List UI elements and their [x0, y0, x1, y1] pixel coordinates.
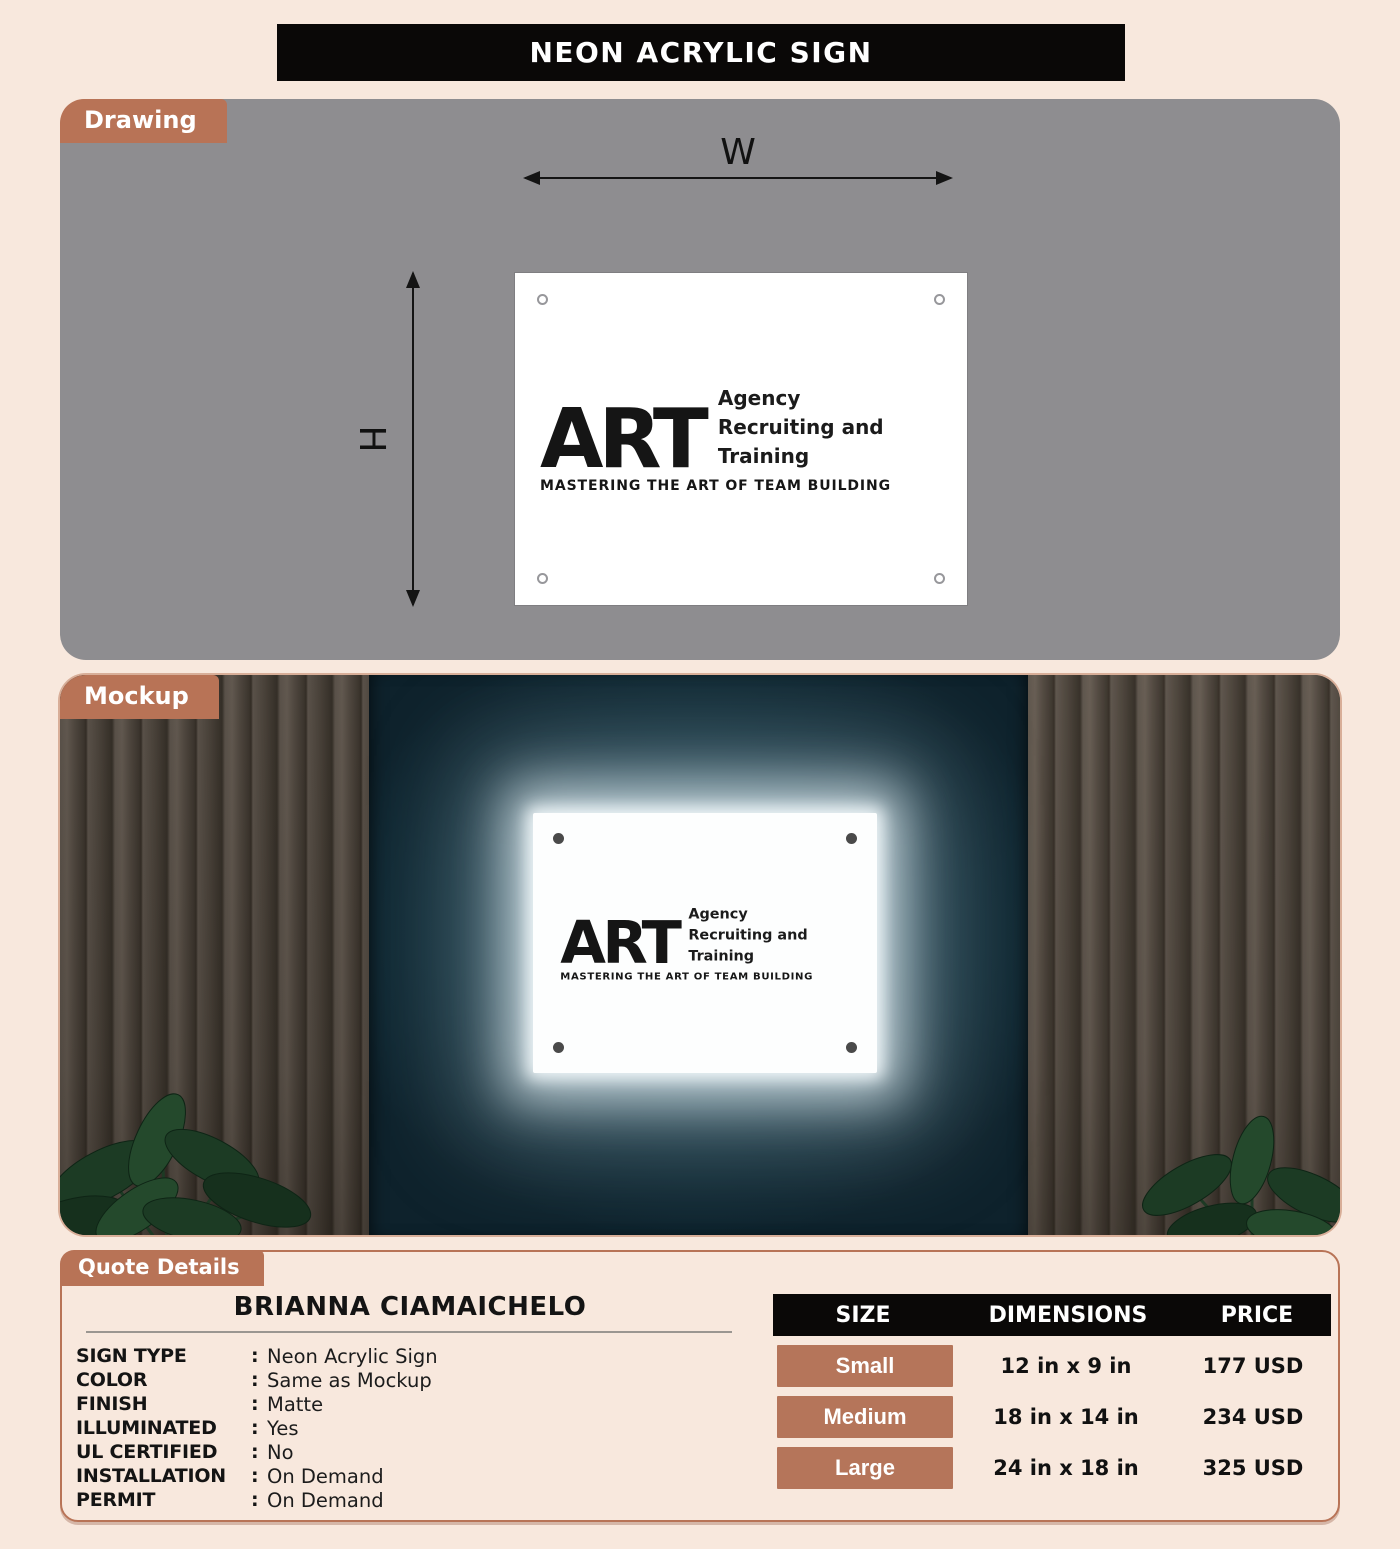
pricing-row-small: Small 12 in x 9 in 177 USD — [773, 1345, 1331, 1387]
art-logo: ART Agency Recruiting and Training MASTE… — [540, 384, 942, 494]
spec-label: ILLUMINATED — [76, 1417, 251, 1439]
title-bar: NEON ACRYLIC SIGN — [277, 24, 1125, 81]
spec-row-ul-certified: UL CERTIFIED : No — [76, 1440, 438, 1464]
spec-label: UL CERTIFIED — [76, 1441, 251, 1463]
spec-row-sign-type: SIGN TYPE : Neon Acrylic Sign — [76, 1344, 438, 1368]
art-logo-subtitle: MASTERING THE ART OF TEAM BUILDING — [540, 478, 942, 494]
mounting-hole-icon — [934, 294, 945, 305]
width-dimension-label: W — [638, 132, 838, 173]
mockup-section: ART Agency Recruiting and Training MASTE… — [60, 675, 1340, 1235]
drawing-section: Drawing W H ART Agency Recruiting and Tr… — [60, 99, 1340, 660]
spec-value: Yes — [267, 1417, 298, 1440]
pricing-table-header: SIZE DIMENSIONS PRICE — [773, 1294, 1331, 1336]
price-value: 325 USD — [1179, 1456, 1327, 1480]
spec-list: SIGN TYPE : Neon Acrylic Sign COLOR : Sa… — [76, 1344, 438, 1512]
pricing-table: SIZE DIMENSIONS PRICE Small 12 in x 9 in… — [773, 1294, 1331, 1489]
height-dimension-label: H — [350, 417, 394, 461]
column-header-dimensions: DIMENSIONS — [953, 1303, 1183, 1328]
spec-value: Same as Mockup — [267, 1369, 432, 1392]
art-logo-subtitle: MASTERING THE ART OF TEAM BUILDING — [560, 971, 849, 983]
price-value: 234 USD — [1179, 1405, 1327, 1429]
art-logo-tagline: Agency Recruiting and Training — [718, 384, 884, 473]
width-arrow — [525, 177, 951, 179]
column-header-size: SIZE — [773, 1303, 953, 1328]
sign-drawing: ART Agency Recruiting and Training MASTE… — [515, 273, 967, 605]
spec-label: PERMIT — [76, 1489, 251, 1511]
standoff-dot-icon — [846, 1042, 857, 1053]
price-value: 177 USD — [1179, 1354, 1327, 1378]
sign-mockup: ART Agency Recruiting and Training MASTE… — [533, 813, 877, 1073]
spec-value: On Demand — [267, 1465, 384, 1488]
customer-name: BRIANNA CIAMAICHELO — [82, 1292, 738, 1322]
height-arrow — [412, 273, 414, 605]
page-title: NEON ACRYLIC SIGN — [529, 36, 872, 69]
pricing-row-large: Large 24 in x 18 in 325 USD — [773, 1447, 1331, 1489]
quote-details-section: Quote Details BRIANNA CIAMAICHELO SIGN T… — [60, 1250, 1340, 1522]
column-header-price: PRICE — [1183, 1303, 1331, 1328]
size-button-small[interactable]: Small — [777, 1345, 953, 1387]
art-logo: ART Agency Recruiting and Training MASTE… — [560, 903, 849, 982]
art-logo-tagline: Agency Recruiting and Training — [688, 903, 807, 967]
standoff-dot-icon — [846, 833, 857, 844]
spec-label: COLOR — [76, 1369, 251, 1391]
mounting-hole-icon — [537, 573, 548, 584]
spec-row-color: COLOR : Same as Mockup — [76, 1368, 438, 1392]
size-button-medium[interactable]: Medium — [777, 1396, 953, 1438]
art-logo-wordmark: ART — [540, 406, 718, 473]
quote-sheet-page: NEON ACRYLIC SIGN Drawing W H ART Agency… — [0, 0, 1400, 1549]
mounting-hole-icon — [537, 294, 548, 305]
dimensions-value: 24 in x 18 in — [953, 1456, 1179, 1480]
mockup-tab: Mockup — [60, 675, 219, 719]
pricing-row-medium: Medium 18 in x 14 in 234 USD — [773, 1396, 1331, 1438]
name-divider — [86, 1331, 732, 1333]
dimensions-value: 18 in x 14 in — [953, 1405, 1179, 1429]
plant-right-image — [1102, 1080, 1340, 1235]
mounting-hole-icon — [934, 573, 945, 584]
quote-details-tab: Quote Details — [60, 1250, 264, 1286]
standoff-dot-icon — [553, 1042, 564, 1053]
spec-value: Matte — [267, 1393, 323, 1416]
spec-value: Neon Acrylic Sign — [267, 1345, 438, 1368]
dimensions-value: 12 in x 9 in — [953, 1354, 1179, 1378]
art-logo-wordmark: ART — [560, 919, 688, 967]
spec-row-illuminated: ILLUMINATED : Yes — [76, 1416, 438, 1440]
drawing-tab: Drawing — [60, 99, 227, 143]
plant-left-image — [60, 1030, 342, 1235]
spec-label: SIGN TYPE — [76, 1345, 251, 1367]
spec-label: INSTALLATION — [76, 1465, 251, 1487]
spec-row-installation: INSTALLATION : On Demand — [76, 1464, 438, 1488]
spec-value: No — [267, 1441, 294, 1464]
spec-label: FINISH — [76, 1393, 251, 1415]
spec-row-permit: PERMIT : On Demand — [76, 1488, 438, 1512]
standoff-dot-icon — [553, 833, 564, 844]
spec-row-finish: FINISH : Matte — [76, 1392, 438, 1416]
spec-value: On Demand — [267, 1489, 384, 1512]
size-button-large[interactable]: Large — [777, 1447, 953, 1489]
